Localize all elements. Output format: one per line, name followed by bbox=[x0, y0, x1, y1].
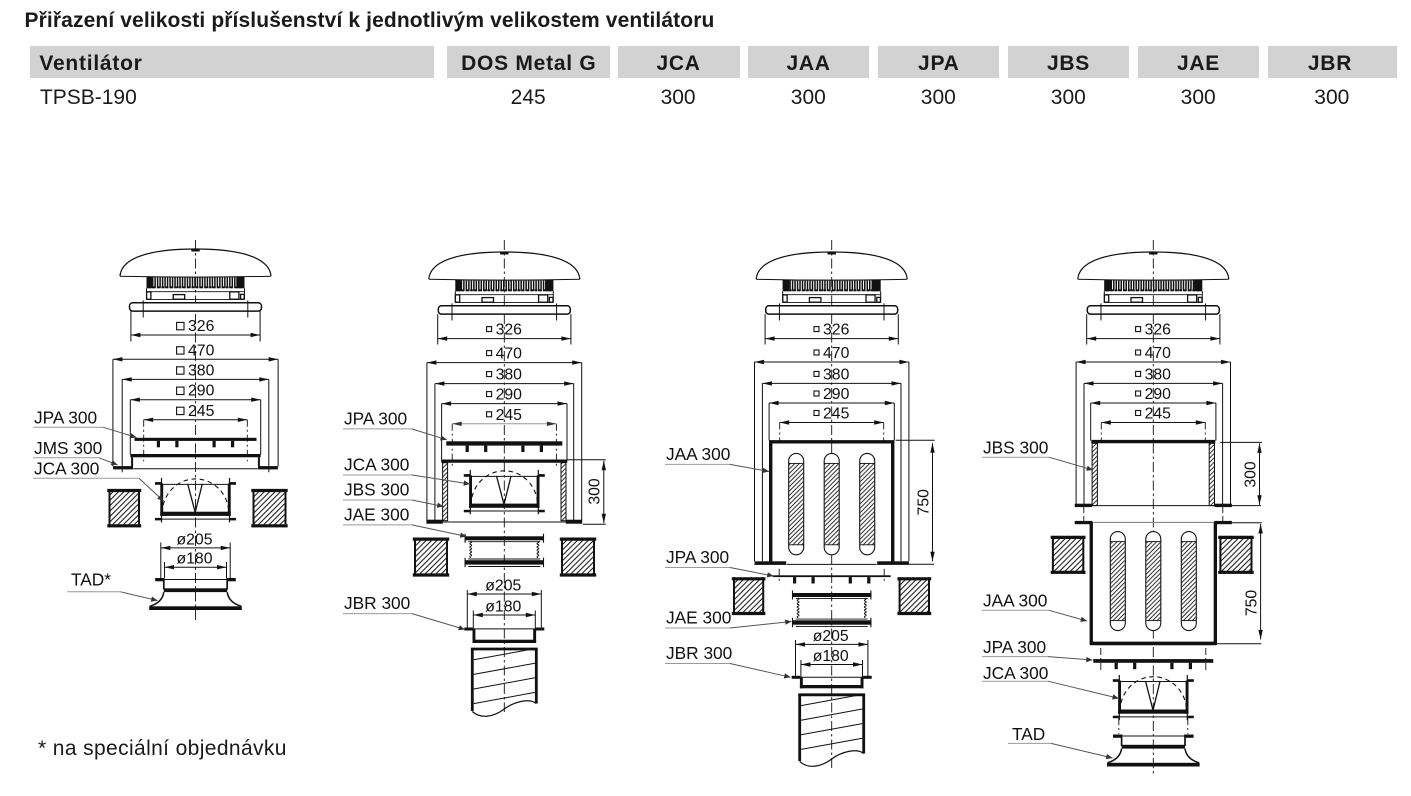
svg-text:JPA 300: JPA 300 bbox=[344, 409, 407, 429]
svg-text:TAD*: TAD* bbox=[71, 570, 111, 590]
svg-text:JBR 300: JBR 300 bbox=[344, 593, 410, 613]
svg-text:290: 290 bbox=[1145, 386, 1172, 403]
svg-text:750: 750 bbox=[1243, 590, 1260, 617]
svg-text:245: 245 bbox=[496, 407, 523, 424]
svg-text:470: 470 bbox=[1145, 345, 1172, 362]
svg-text:JAA 300: JAA 300 bbox=[983, 591, 1047, 611]
svg-text:JCA 300: JCA 300 bbox=[34, 459, 99, 479]
svg-text:245: 245 bbox=[1145, 406, 1172, 423]
svg-text:326: 326 bbox=[1145, 322, 1172, 339]
svg-text:JCA 300: JCA 300 bbox=[983, 663, 1048, 683]
svg-text:326: 326 bbox=[823, 322, 850, 339]
svg-text:ø205: ø205 bbox=[176, 531, 212, 548]
svg-text:ø205: ø205 bbox=[485, 577, 521, 594]
svg-text:JCA 300: JCA 300 bbox=[344, 455, 409, 475]
svg-text:JAA 300: JAA 300 bbox=[666, 444, 730, 464]
svg-text:300: 300 bbox=[1242, 461, 1259, 488]
svg-text:290: 290 bbox=[188, 383, 215, 400]
svg-text:326: 326 bbox=[496, 322, 523, 339]
svg-text:245: 245 bbox=[188, 403, 215, 420]
svg-text:JPA 300: JPA 300 bbox=[983, 637, 1046, 657]
svg-text:380: 380 bbox=[496, 367, 523, 384]
svg-text:JPA 300: JPA 300 bbox=[34, 408, 97, 428]
svg-text:JMS 300: JMS 300 bbox=[34, 438, 102, 458]
svg-text:JPA 300: JPA 300 bbox=[666, 547, 729, 567]
svg-text:JBR 300: JBR 300 bbox=[666, 643, 732, 663]
svg-text:JAE 300: JAE 300 bbox=[666, 607, 731, 627]
svg-text:470: 470 bbox=[188, 342, 215, 359]
svg-text:300: 300 bbox=[587, 478, 604, 505]
svg-text:JAE 300: JAE 300 bbox=[344, 504, 409, 524]
svg-text:470: 470 bbox=[496, 346, 523, 363]
svg-text:ø180: ø180 bbox=[485, 598, 521, 615]
svg-text:ø180: ø180 bbox=[176, 551, 212, 568]
svg-text:750: 750 bbox=[915, 489, 932, 516]
svg-text:JBS 300: JBS 300 bbox=[344, 479, 409, 499]
svg-text:290: 290 bbox=[823, 386, 850, 403]
svg-text:380: 380 bbox=[188, 362, 215, 379]
svg-text:470: 470 bbox=[823, 345, 850, 362]
svg-text:380: 380 bbox=[823, 366, 850, 383]
svg-text:TAD: TAD bbox=[1012, 724, 1045, 744]
svg-text:326: 326 bbox=[188, 318, 215, 335]
svg-text:245: 245 bbox=[823, 406, 850, 423]
svg-text:ø180: ø180 bbox=[813, 648, 849, 665]
svg-text:ø205: ø205 bbox=[813, 628, 849, 645]
svg-text:JBS 300: JBS 300 bbox=[983, 438, 1048, 458]
svg-text:380: 380 bbox=[1145, 366, 1172, 383]
svg-text:290: 290 bbox=[496, 387, 523, 404]
